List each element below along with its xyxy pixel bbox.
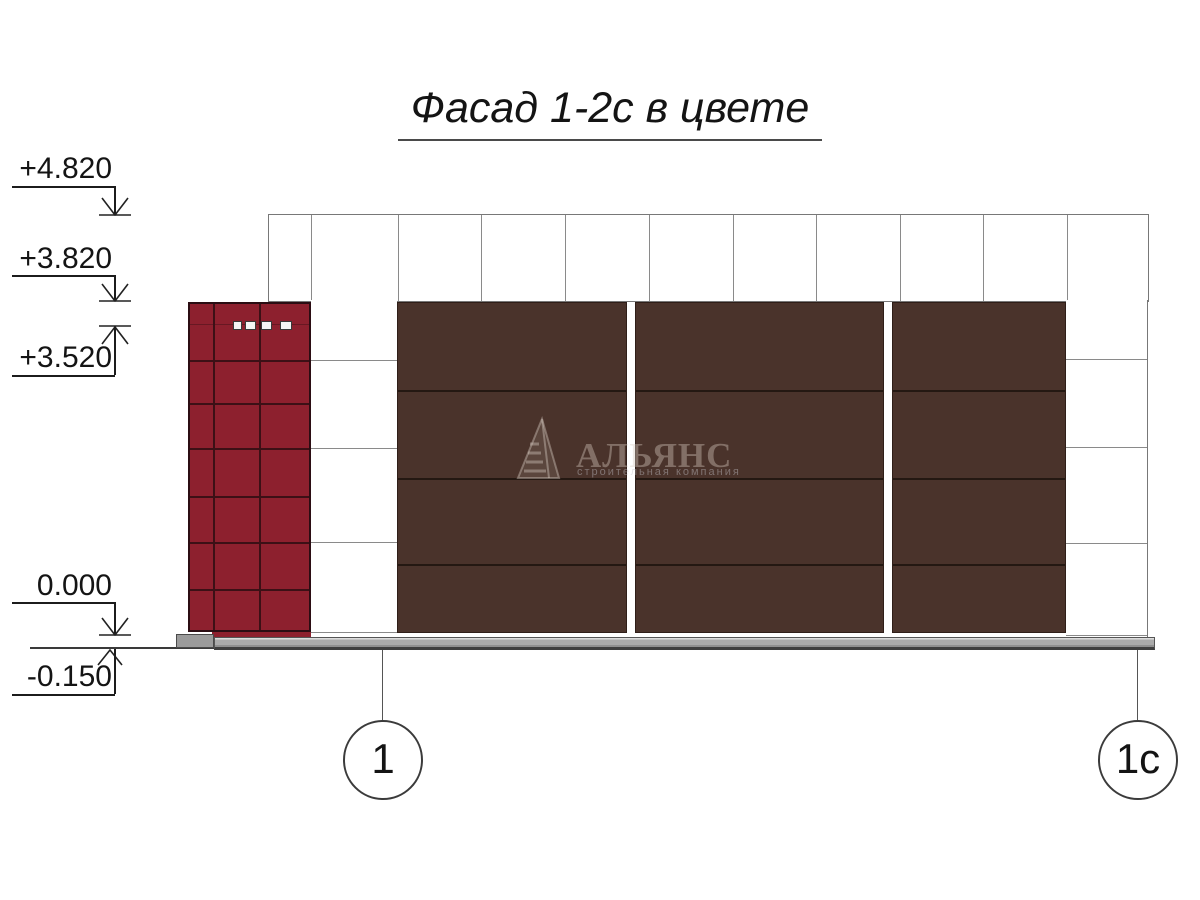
panel-joint — [636, 478, 883, 480]
facade-white-column-left — [311, 300, 397, 633]
elevation-label: +3.820 — [12, 242, 112, 276]
facade-white-column-right — [1066, 300, 1148, 637]
leader-line — [12, 375, 115, 377]
grid-line — [398, 215, 399, 301]
grid-line — [1066, 359, 1147, 360]
grid-line — [311, 215, 312, 301]
facade-top-band — [268, 214, 1149, 302]
vent-grille — [233, 321, 242, 330]
grid-line — [311, 542, 397, 543]
leader-line — [114, 327, 116, 375]
tile-joint — [190, 360, 309, 362]
tile-joint — [190, 403, 309, 405]
grid-line — [1066, 447, 1147, 448]
watermark-subtitle: строительная компания — [577, 466, 741, 478]
grid-line — [649, 215, 650, 301]
panel-joint — [398, 564, 626, 566]
red-pilaster — [188, 302, 311, 632]
grid-line — [311, 632, 397, 633]
arrow-down-icon — [99, 283, 131, 302]
grid-line — [481, 215, 482, 301]
facade-elevation-drawing: Фасад 1-2с в цвете — [0, 0, 1200, 900]
pyramid-logo-icon — [515, 416, 561, 482]
axis-bubble: 1с — [1098, 720, 1178, 800]
panel-joint — [636, 390, 883, 392]
grid-line — [816, 215, 817, 301]
grid-line — [565, 215, 566, 301]
grid-line — [1066, 635, 1147, 636]
grid-line — [733, 215, 734, 301]
grid-line — [311, 360, 397, 361]
grid-line — [900, 215, 901, 301]
plinth-strip — [214, 637, 1155, 650]
panel-joint — [398, 478, 626, 480]
panel-joint — [893, 478, 1065, 480]
leader-line — [114, 649, 116, 694]
tile-joint — [190, 589, 309, 591]
leader-line — [12, 602, 115, 604]
vent-grille — [245, 321, 256, 330]
leader-line — [12, 694, 115, 696]
leader-line — [12, 186, 115, 188]
panel-joint — [398, 390, 626, 392]
panel-joint — [893, 564, 1065, 566]
tile-joint — [213, 304, 215, 630]
axis-bubble: 1 — [343, 720, 423, 800]
brown-panel-3 — [892, 302, 1066, 633]
panel-joint — [893, 390, 1065, 392]
elevation-label: 0.000 — [12, 569, 112, 603]
grid-line — [1066, 543, 1147, 544]
tile-joint — [190, 496, 309, 498]
vent-grille — [261, 321, 272, 330]
axis-line — [382, 650, 383, 720]
vent-grille — [280, 321, 292, 330]
tile-joint — [259, 304, 261, 630]
drawing-title: Фасад 1-2с в цвете — [398, 84, 822, 141]
elevation-label: +3.520 — [12, 341, 112, 375]
elevation-label: +4.820 — [12, 152, 112, 186]
grid-line — [1067, 215, 1068, 301]
panel-joint — [636, 564, 883, 566]
arrow-down-icon — [99, 617, 131, 636]
tile-joint — [190, 448, 309, 450]
plinth-block-left — [176, 634, 214, 648]
arrow-down-icon — [99, 197, 131, 216]
axis-line — [1137, 650, 1138, 720]
tile-joint — [190, 542, 309, 544]
elevation-label: -0.150 — [12, 660, 112, 694]
grid-line — [311, 448, 397, 449]
grid-line — [983, 215, 984, 301]
leader-line — [12, 275, 115, 277]
